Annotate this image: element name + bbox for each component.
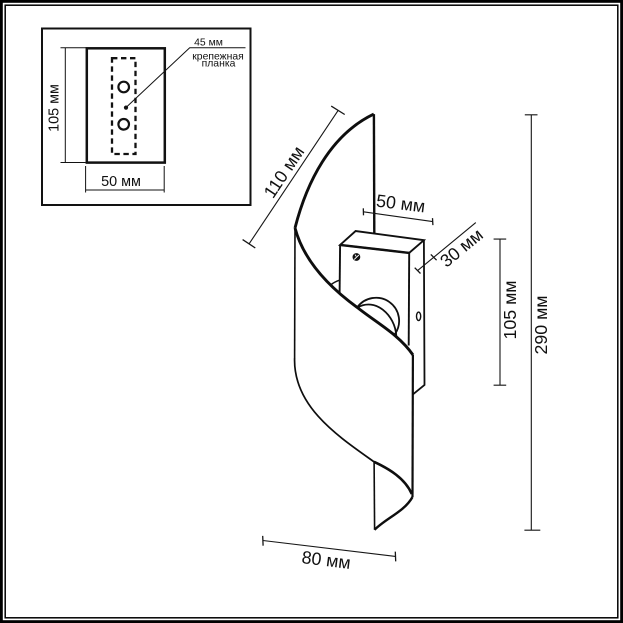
svg-text:45 мм: 45 мм (194, 38, 223, 49)
svg-text:50 мм: 50 мм (375, 191, 426, 217)
svg-text:30 мм: 30 мм (436, 225, 487, 272)
svg-text:110 мм: 110 мм (260, 142, 309, 201)
svg-text:80 мм: 80 мм (301, 547, 352, 573)
svg-text:105 мм: 105 мм (500, 280, 520, 339)
svg-text:290 мм: 290 мм (531, 295, 551, 354)
svg-text:50 мм: 50 мм (101, 174, 141, 190)
svg-text:планка: планка (202, 59, 236, 70)
svg-text:105 мм: 105 мм (47, 84, 63, 132)
